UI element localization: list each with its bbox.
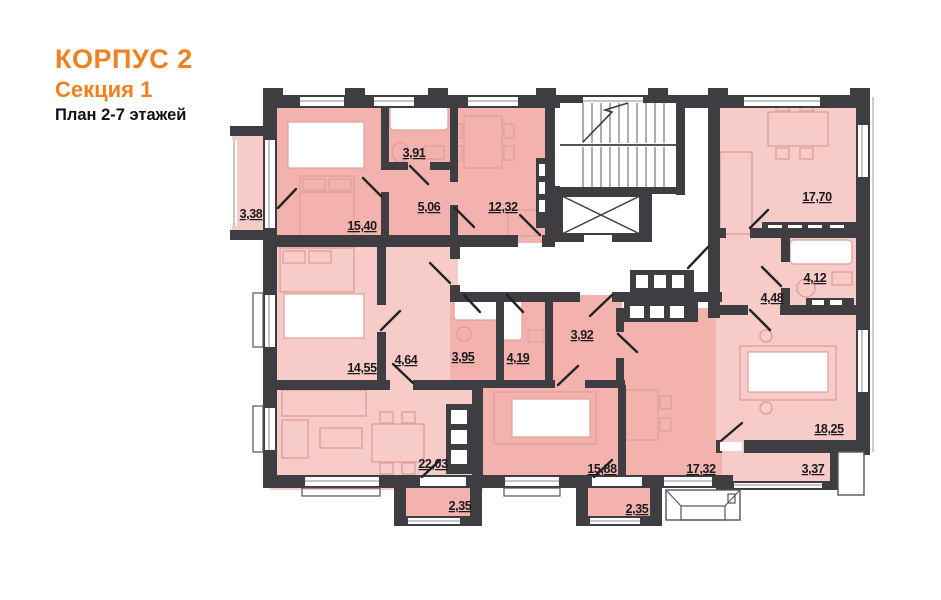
label-living-17-70: 17,70 <box>802 190 832 204</box>
label-balcony-2-35-left: 2,35 <box>449 499 472 513</box>
floor-plan-page: КОРПУС 2 Секция 1 План 2-7 этажей <box>0 0 941 600</box>
label-living-22-03: 22,03 <box>418 457 448 471</box>
section-title: Секция 1 <box>55 78 193 103</box>
label-bathroom-3-95: 3,95 <box>452 350 475 364</box>
staircase <box>560 103 676 234</box>
label-bedroom-15-88: 15,88 <box>587 462 617 476</box>
label-bedroom-15-40: 15,40 <box>347 219 377 233</box>
label-bedroom-14-55: 14,55 <box>347 361 377 375</box>
elevator <box>562 196 640 234</box>
floors-subtitle: План 2-7 этажей <box>55 106 193 124</box>
label-hall-5-06: 5,06 <box>418 200 441 214</box>
label-living-17-32: 17,32 <box>686 462 716 476</box>
entrance-canopy <box>666 490 740 520</box>
label-hall-4-48: 4,48 <box>761 291 784 305</box>
title-block: КОРПУС 2 Секция 1 План 2-7 этажей <box>55 44 193 124</box>
label-balcony-3-37: 3,37 <box>802 462 825 476</box>
room-hall-4-64 <box>377 243 458 390</box>
label-bathroom-4-12: 4,12 <box>804 271 827 285</box>
building-title: КОРПУС 2 <box>55 44 193 74</box>
label-hall-4-64: 4,64 <box>395 353 418 367</box>
label-bathroom-3-91: 3,91 <box>403 146 426 160</box>
label-bedroom-18-25: 18,25 <box>814 422 844 436</box>
label-kitchen-12-32: 12,32 <box>488 200 518 214</box>
terrace-outline <box>838 452 864 495</box>
label-balcony-2-35-right: 2,35 <box>626 502 649 516</box>
label-hall-3-92: 3,92 <box>571 328 594 342</box>
label-balcony-3-38: 3,38 <box>240 207 263 221</box>
room-living-17-32 <box>618 308 728 488</box>
room-living-17-70 <box>716 95 862 240</box>
label-bathroom-4-19: 4,19 <box>507 351 530 365</box>
